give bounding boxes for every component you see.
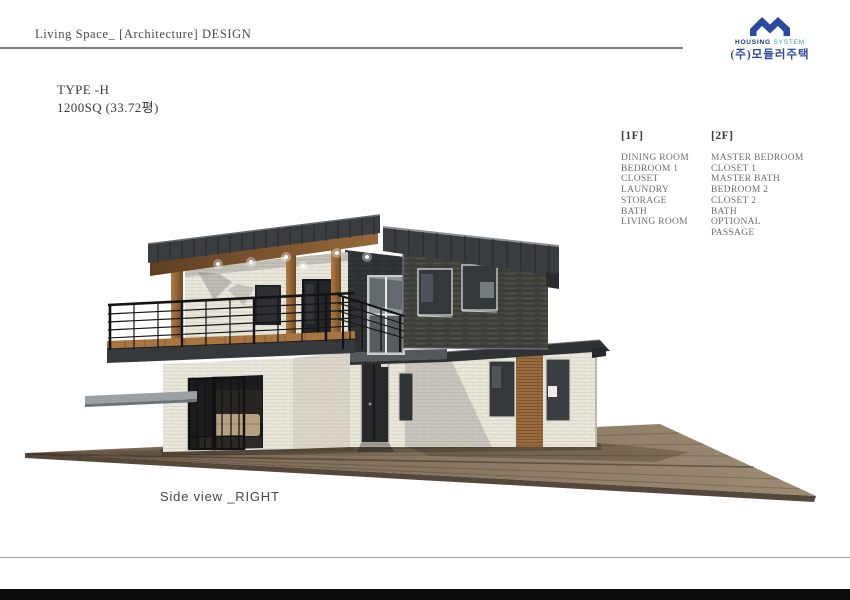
wing-window-1 (489, 361, 515, 417)
sofa (214, 414, 260, 436)
bottom-bar (0, 589, 850, 600)
house-rendering (0, 0, 850, 600)
presentation-slide: Living Space_ [Architecture] DESIGN HOUS… (0, 0, 850, 600)
entrance-door (357, 362, 394, 452)
bottom-rule (0, 557, 850, 558)
caption-side-view: Side view _RIGHT (160, 489, 280, 504)
entry-side-window (399, 373, 413, 421)
bedroom2-window (462, 265, 497, 312)
wood-slat-accent (516, 349, 543, 447)
master-bedroom-window (418, 269, 452, 317)
wing-window-2 (546, 359, 570, 421)
terrace-window (256, 286, 280, 324)
living-room-glass-door (188, 375, 263, 450)
terrace (107, 215, 380, 363)
